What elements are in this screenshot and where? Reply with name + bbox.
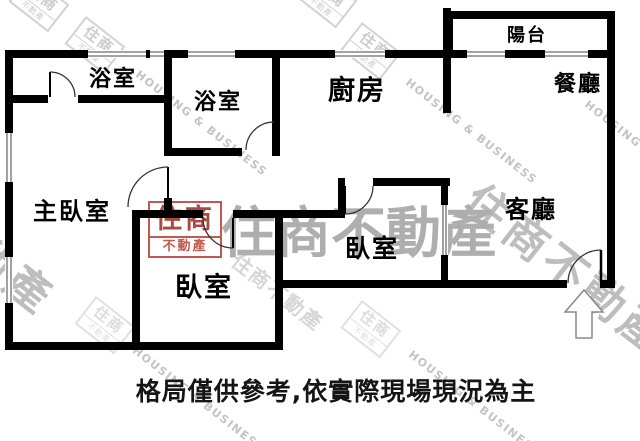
door-bedroom-left — [203, 218, 233, 248]
room-label-balcony: 陽台 — [507, 21, 547, 47]
walls — [5, 8, 615, 350]
wall-bottom-left — [5, 342, 283, 350]
wall-balcony-top — [445, 11, 615, 19]
floorplan-page: 住商 不動產 住商 不動產 HOUSING & BUSINESS 住商 不動產 … — [0, 0, 640, 441]
balcony-sliding-door — [545, 50, 588, 58]
room-label-bedroom-left: 臥室 — [175, 266, 233, 305]
wall-connector — [338, 178, 345, 218]
room-label-kitchen: 廚房 — [328, 69, 386, 108]
wall-hall — [233, 210, 345, 218]
room-label-master-bedroom: 主臥室 — [33, 192, 111, 227]
wall-kitchen-dining — [443, 8, 451, 113]
balcony-sliding-door — [467, 50, 505, 58]
wall-bath1-bottom — [78, 95, 172, 103]
window — [150, 50, 164, 58]
window — [88, 50, 146, 58]
window — [5, 133, 13, 182]
door-entrance — [568, 250, 601, 283]
window — [335, 50, 385, 58]
wall-right — [607, 11, 615, 288]
wall-bath1-bottom — [5, 95, 48, 103]
room-label-living-room: 客廳 — [505, 190, 557, 225]
window — [5, 257, 13, 303]
entrance-arrow-icon — [565, 290, 603, 338]
wall-bottom-right — [275, 280, 567, 288]
disclaimer-text: 格局僅供參考,依實際現場現況為主 — [136, 372, 537, 408]
room-label-bathroom-top: 浴室 — [89, 61, 137, 93]
window — [188, 50, 235, 58]
door-bathroom-top — [50, 72, 75, 97]
window — [441, 205, 448, 255]
wall-bath-divider — [164, 56, 172, 156]
room-label-dining-room: 餐廳 — [554, 66, 602, 98]
wall-bedroom-right-top — [373, 178, 450, 186]
wall-master-bedroom-divider — [132, 210, 140, 342]
door-bathroom-inner — [246, 122, 274, 150]
wall-hall — [132, 210, 203, 218]
room-label-bedroom-right: 臥室 — [345, 229, 399, 265]
wall-bath2-bottom — [164, 148, 242, 156]
door-bedroom-right — [345, 186, 373, 214]
room-label-bathroom-inner: 浴室 — [194, 84, 242, 116]
door-master-bedroom — [128, 167, 168, 207]
